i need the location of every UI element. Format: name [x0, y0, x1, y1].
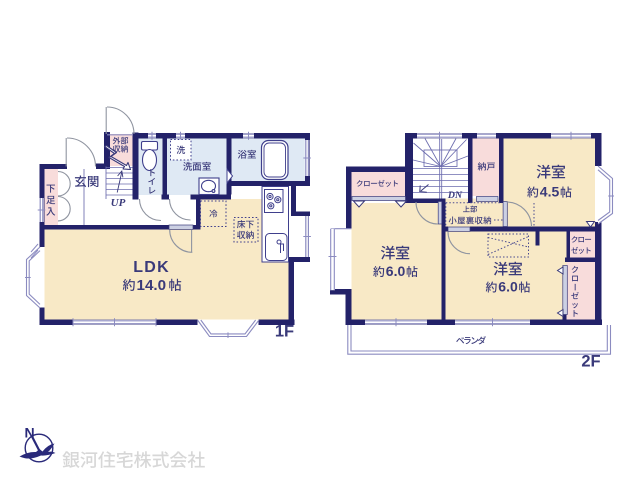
svg-text:6.0: 6.0: [386, 263, 406, 279]
svg-text:UP: UP: [111, 197, 126, 209]
svg-text:N: N: [24, 425, 34, 441]
svg-text:14.0: 14.0: [137, 277, 167, 294]
svg-text:LDK: LDK: [133, 259, 170, 276]
svg-text:DN: DN: [447, 190, 463, 201]
svg-text:2F: 2F: [581, 353, 600, 371]
svg-text:4.5: 4.5: [540, 184, 560, 200]
svg-text:6.0: 6.0: [498, 279, 518, 295]
svg-text:1F: 1F: [275, 323, 294, 341]
